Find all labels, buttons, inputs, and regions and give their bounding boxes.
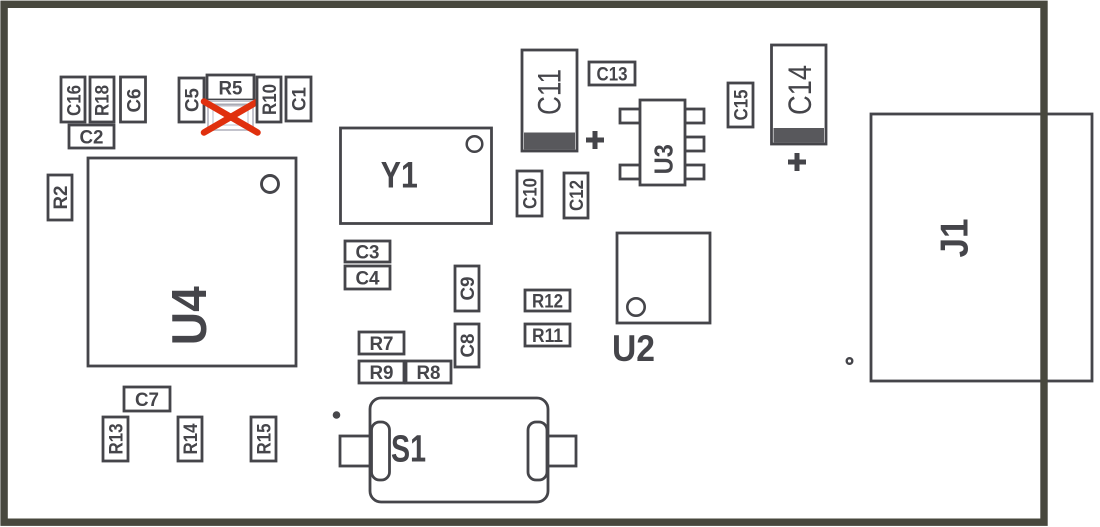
svg-text:C4: C4 [356, 268, 380, 289]
svg-text:U3: U3 [649, 144, 679, 174]
svg-text:C15: C15 [731, 89, 752, 120]
svg-text:R2: R2 [51, 186, 72, 210]
svg-text:R14: R14 [181, 423, 202, 454]
svg-text:U4: U4 [163, 286, 217, 345]
svg-text:C11: C11 [532, 69, 568, 115]
svg-text:R15: R15 [254, 423, 275, 454]
svg-text:C6: C6 [124, 89, 145, 113]
svg-text:R8: R8 [417, 363, 441, 384]
svg-text:C13: C13 [597, 64, 628, 85]
svg-text:C7: C7 [135, 390, 159, 411]
svg-text:J1: J1 [934, 219, 977, 258]
svg-text:R11: R11 [532, 326, 563, 347]
svg-text:R12: R12 [532, 291, 563, 312]
svg-text:R18: R18 [92, 85, 113, 116]
svg-text:R7: R7 [370, 334, 394, 355]
svg-text:S1: S1 [391, 429, 426, 471]
svg-text:R9: R9 [370, 363, 394, 384]
svg-text:R10: R10 [260, 84, 281, 115]
svg-text:R13: R13 [106, 424, 127, 455]
svg-text:U2: U2 [612, 327, 655, 369]
svg-text:C2: C2 [80, 127, 104, 148]
svg-text:C1: C1 [289, 87, 310, 111]
svg-text:C8: C8 [458, 334, 479, 358]
svg-text:C16: C16 [64, 85, 85, 116]
svg-text:Y1: Y1 [381, 155, 418, 196]
svg-text:R5: R5 [219, 78, 243, 99]
svg-text:C3: C3 [356, 242, 380, 263]
svg-text:C14: C14 [782, 65, 818, 115]
svg-text:C9: C9 [458, 277, 479, 301]
svg-text:C10: C10 [520, 178, 541, 209]
svg-text:C5: C5 [182, 88, 203, 112]
svg-text:C12: C12 [567, 180, 588, 211]
